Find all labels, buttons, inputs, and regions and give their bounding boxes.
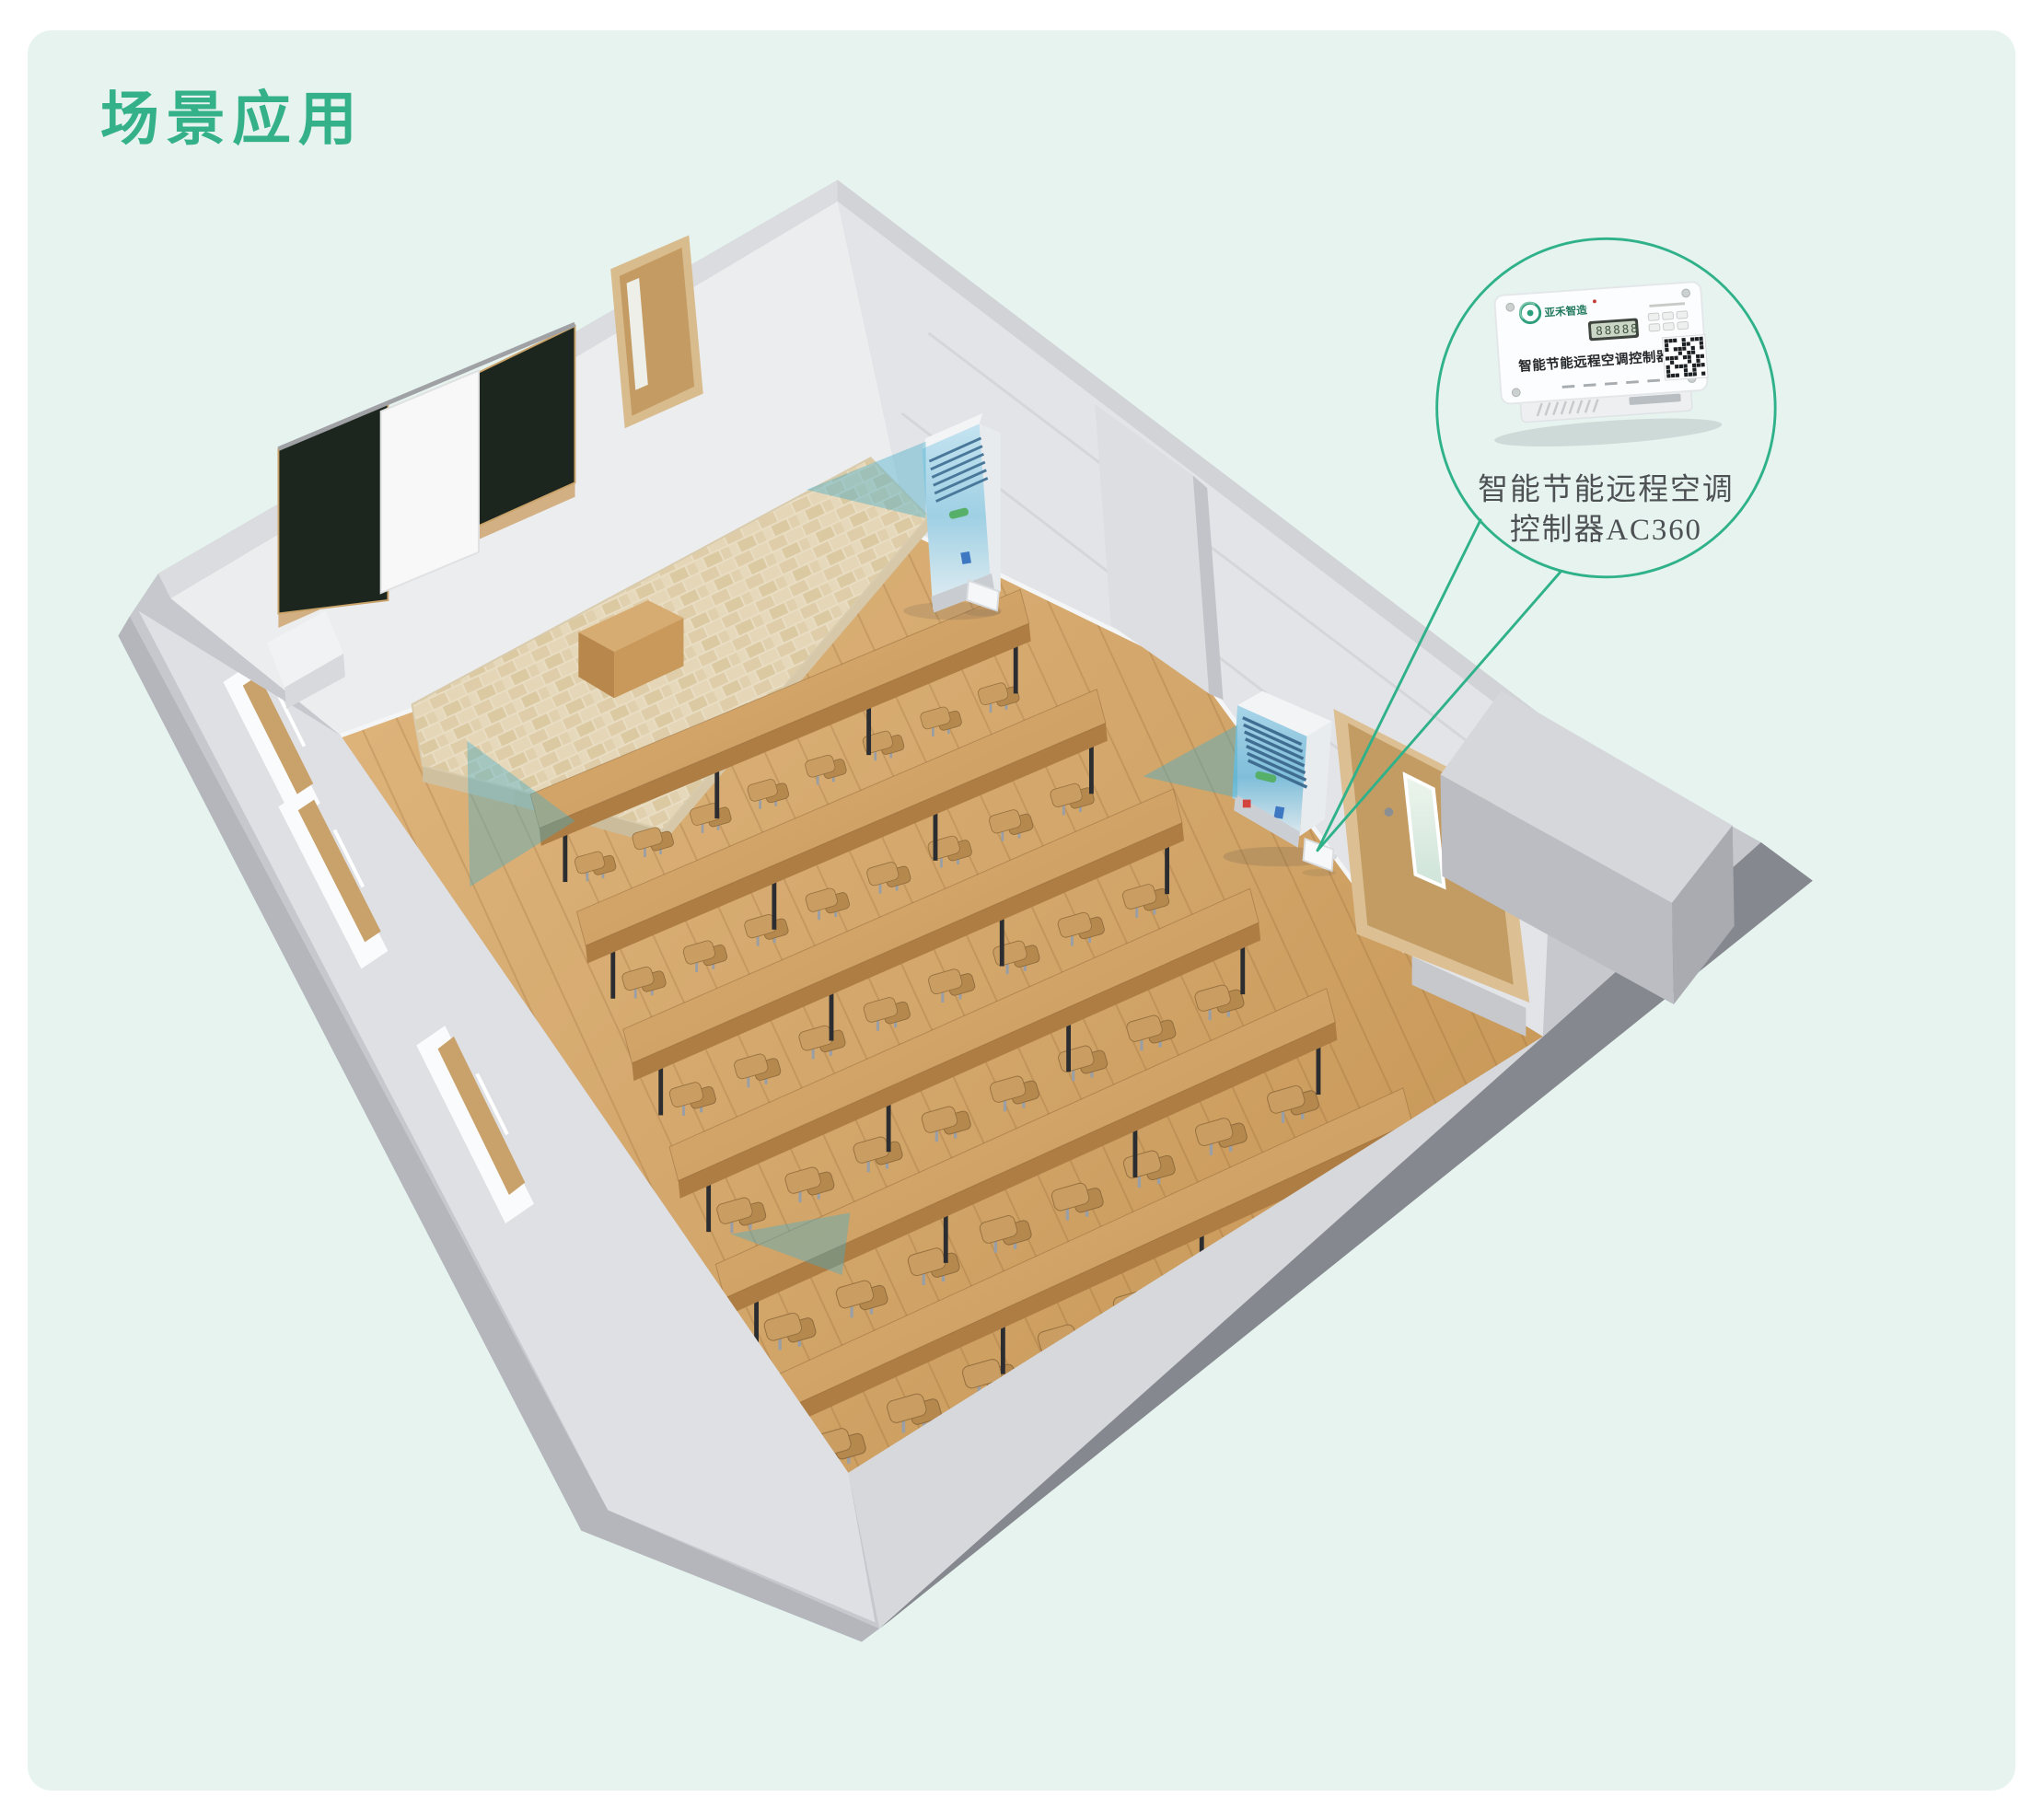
corner-screw (1506, 303, 1515, 311)
table-leg (1066, 1022, 1071, 1072)
page-title: 场景应用 (100, 87, 364, 152)
table-leg (1133, 1128, 1138, 1177)
table-leg (866, 705, 871, 755)
table-leg (887, 1102, 891, 1152)
content-card: 亚禾智造 88888 智能节能远程空调控制器 (28, 30, 2015, 1791)
table-leg (934, 811, 938, 861)
table-leg (1000, 916, 1004, 966)
table-leg (1089, 744, 1094, 794)
product-device-image: 亚禾智造 88888 智能节能远程空调控制器 (1484, 281, 1723, 452)
page: { "title": { "text": "场景应用" }, "colors":… (0, 0, 2043, 1820)
corner-screw (1512, 388, 1520, 397)
table-leg (658, 1065, 663, 1115)
table-leg (714, 769, 719, 818)
table-leg (1165, 844, 1169, 894)
door-handle (1385, 807, 1394, 817)
callout-caption-line2: 控制器AC360 (1510, 513, 1702, 547)
led-display: 88888 (1588, 318, 1641, 341)
table-leg (944, 1213, 948, 1263)
table-leg (1001, 1324, 1005, 1374)
corner-screw (1682, 289, 1690, 297)
table-leg (1014, 643, 1018, 693)
classroom-scene-illustration: 亚禾智造 88888 智能节能远程空调控制器 (28, 30, 2015, 1791)
table-leg (610, 949, 615, 999)
callout-caption-line1: 智能节能远程空调 (1478, 473, 1734, 507)
table-leg (1317, 1045, 1321, 1095)
table-leg (706, 1182, 711, 1232)
table-leg (1240, 945, 1245, 994)
back-door (610, 235, 703, 428)
qr-code-icon (1662, 335, 1708, 381)
wall-socket (1243, 800, 1251, 808)
table-leg (563, 832, 567, 882)
blackboard-panel (278, 402, 388, 613)
table-leg (772, 880, 776, 930)
table-leg (830, 991, 834, 1040)
